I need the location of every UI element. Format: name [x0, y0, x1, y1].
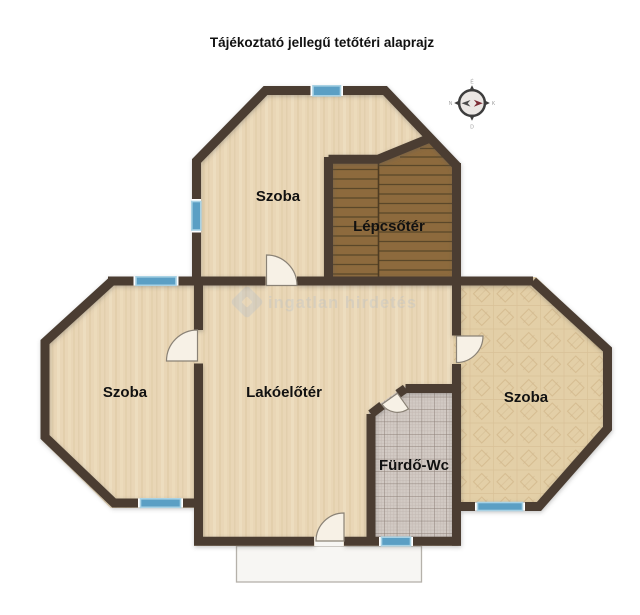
svg-text:Szoba: Szoba	[504, 389, 549, 406]
svg-text:ingatlan hirdetés: ingatlan hirdetés	[268, 294, 417, 312]
svg-text:N: N	[449, 101, 453, 107]
svg-text:Lakóelőtér: Lakóelőtér	[246, 384, 322, 401]
svg-text:D: D	[470, 125, 474, 131]
svg-text:Tájékoztató jellegű tetőtéri a: Tájékoztató jellegű tetőtéri alaprajz	[210, 35, 435, 50]
svg-text:Fürdő-Wc: Fürdő-Wc	[379, 457, 449, 474]
svg-text:Szoba: Szoba	[256, 188, 301, 205]
svg-text:Lépcsőtér: Lépcsőtér	[353, 218, 425, 235]
svg-text:Szoba: Szoba	[103, 384, 148, 401]
